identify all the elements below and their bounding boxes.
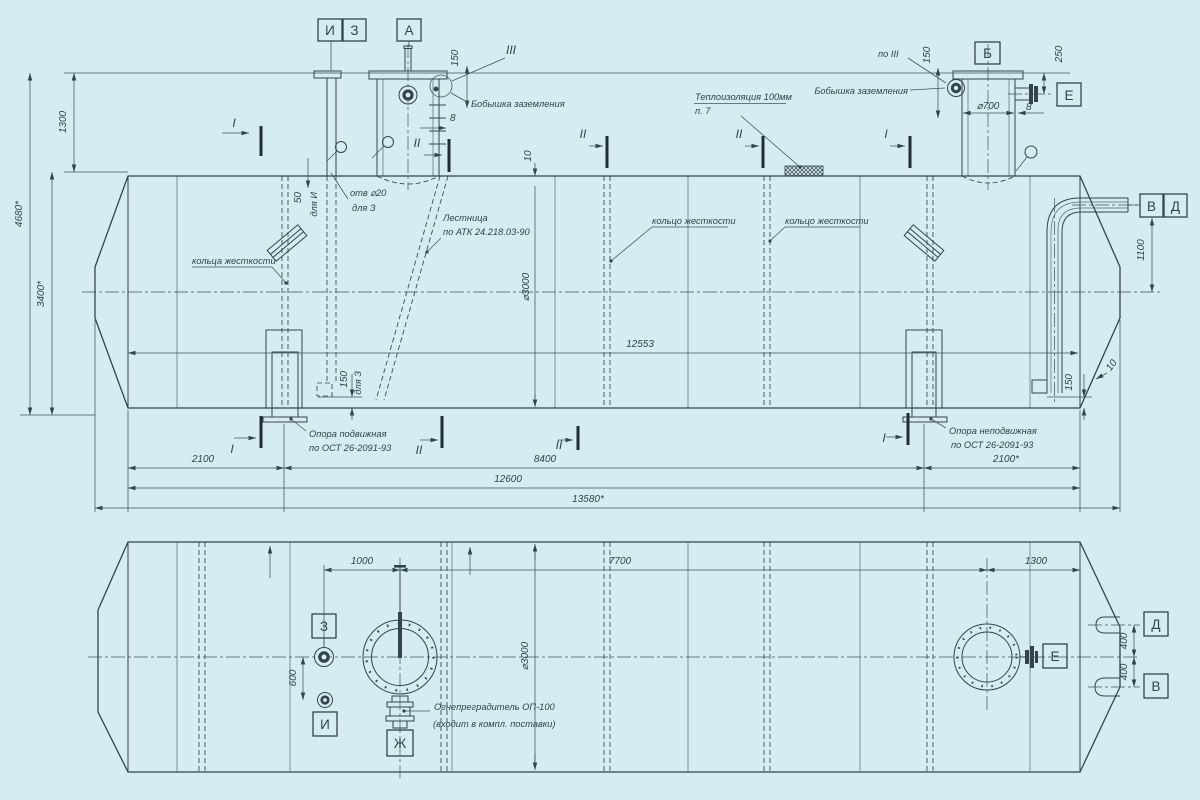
marker-zh: Ж [394, 736, 407, 751]
dim-12600: 12600 [494, 474, 522, 485]
note-insulation-2: п. 7 [695, 106, 711, 116]
support-fixed [903, 330, 947, 422]
marker-i: И [325, 23, 335, 38]
blueprint-tank-drawing: 1300 3400* 4680* И З А III 150 Бобышка з… [0, 0, 1200, 800]
section-i-top-left: I [232, 116, 236, 130]
dim-1300: 1300 [58, 110, 69, 133]
dim-8400: 8400 [534, 454, 557, 465]
marker-d-plan: Д [1151, 617, 1160, 632]
marker-d-upper: Д [1171, 199, 1180, 214]
marker-b: Б [983, 46, 992, 61]
marker-z: З [350, 23, 358, 38]
dim-400-b: 400 [1119, 663, 1130, 680]
insulation-patch [785, 166, 823, 176]
note-support-fixed-2: по ОСТ 26-2091-93 [951, 440, 1034, 450]
note-for-z-top: для З [352, 203, 376, 213]
note-arrester-1: Огнепреградитель ОП-100 [434, 702, 556, 712]
callout-box-d-upper: Д [1164, 194, 1187, 217]
section-i-bot-left: I [230, 442, 234, 456]
lower-view-plan: З И 600 Ж Огнепреградитель ОП-100 (входи… [88, 542, 1168, 778]
callout-box-v-upper: В [1140, 194, 1163, 217]
note-ladder-2: по АТК 24.218.03-90 [443, 227, 531, 237]
dim-250: 250 [1054, 45, 1065, 63]
note-support-sliding-2: по ОСТ 26-2091-93 [309, 443, 392, 453]
callout-box-e-upper: Е [1057, 83, 1081, 106]
callout-box-e-plan: Е [1043, 644, 1067, 668]
dim-150-z: 150 [339, 371, 350, 388]
dim-150-b: 150 [922, 46, 933, 63]
shell-seams [177, 176, 1030, 408]
manhole-b-plan [954, 558, 1038, 712]
dim-2100: 2100 [191, 454, 215, 465]
note-rings-left: кольца жесткости [192, 256, 276, 266]
dim-2100s: 2100* [992, 454, 1020, 465]
nozzle-v-plan [1088, 678, 1140, 696]
note-hole-20: отв ⌀20 [350, 188, 387, 198]
marker-v-plan: В [1151, 679, 1160, 694]
marker-i-plan: И [320, 717, 330, 732]
vent-pipe-assembly [314, 71, 347, 396]
dim-10-cone: 10 [1104, 357, 1120, 373]
marker-a: А [404, 23, 413, 38]
callout-box-a: А [397, 19, 421, 41]
section-i-bot-right: I [882, 431, 886, 445]
section-marks-top: I II II II I [222, 116, 910, 172]
hatch-b-assembly [948, 44, 1055, 190]
section-ii-bot-1: II [416, 443, 423, 457]
dim-1300-plan: 1300 [1025, 556, 1048, 567]
note-support-fixed-1: Опора неподвижная [949, 426, 1037, 436]
flame-arrester [386, 696, 430, 728]
dim-10-top: 10 [523, 150, 534, 162]
note-po-iii: по III [878, 49, 899, 59]
dim-3000-upper: ⌀3000 [521, 272, 532, 301]
dim-3000-plan: ⌀3000 [520, 641, 531, 670]
note-ladder-1: Лестница [442, 213, 488, 223]
note-ring-mid2: кольцо жесткости [785, 216, 869, 226]
callout-box-b: Б [975, 42, 1000, 64]
dim-8-a: 8 [450, 113, 456, 124]
boss-i [318, 693, 333, 708]
dim-1100: 1100 [1136, 239, 1147, 261]
section-ii-top-1: II [580, 127, 587, 141]
dim-50: 50 [293, 192, 304, 204]
section-ii-top-2: II [736, 127, 743, 141]
note-for-z-bottom: для З [353, 371, 363, 395]
dim-700: ⌀700 [977, 101, 1000, 112]
section-iii-label: III [506, 43, 517, 57]
dim-400-a: 400 [1119, 632, 1130, 649]
inlet-pipe-vd [1032, 198, 1138, 402]
upper-view-annotations: 1300 3400* 4680* И З А III 150 Бобышка з… [14, 19, 1187, 512]
marker-v-upper: В [1147, 199, 1156, 214]
marker-e-upper: Е [1064, 88, 1073, 103]
support-sliding [263, 330, 307, 422]
note-grounding-boss-b: Бобышка заземления [814, 86, 908, 96]
callout-box-i: И [318, 19, 342, 41]
nozzle-d-plan [1088, 617, 1140, 633]
dim-1000: 1000 [351, 556, 374, 567]
note-support-sliding-1: Опора подвижная [309, 429, 387, 439]
note-arrester-2: (входит в компл. поставки) [433, 719, 555, 729]
hatch-a-assembly [369, 44, 452, 190]
interior-ladder [376, 176, 448, 400]
note-grounding-boss-a: Бобышка заземления [471, 99, 565, 109]
callout-box-z: З [343, 19, 366, 41]
dim-8-b: 8 [1026, 102, 1032, 113]
drawing-canvas: 1300 3400* 4680* И З А III 150 Бобышка з… [0, 0, 1200, 800]
dim-7700: 7700 [609, 556, 632, 567]
section-i-top-right: I [884, 127, 888, 141]
strap-symbol-right [904, 225, 944, 261]
dim-150-r: 150 [1064, 374, 1075, 391]
ladder-rungs [429, 105, 446, 144]
callout-box-d-plan: Д [1144, 612, 1168, 636]
callout-box-v-plan: В [1144, 674, 1168, 698]
marker-e-plan: Е [1050, 649, 1059, 664]
dim-13580: 13580* [572, 494, 605, 505]
dim-12553: 12553 [626, 339, 654, 350]
note-insulation-1: Теплоизоляция 100мм [695, 92, 793, 102]
section-ii-top-hatch: II [414, 136, 421, 150]
dim-4680: 4680* [14, 200, 25, 227]
dim-3400: 3400* [36, 280, 47, 307]
callout-box-i-plan: И [313, 712, 337, 736]
note-for-i: для И [309, 192, 319, 217]
dim-600: 600 [288, 669, 299, 686]
dim-150-a: 150 [450, 49, 461, 66]
note-ring-mid1: кольцо жесткости [652, 216, 736, 226]
